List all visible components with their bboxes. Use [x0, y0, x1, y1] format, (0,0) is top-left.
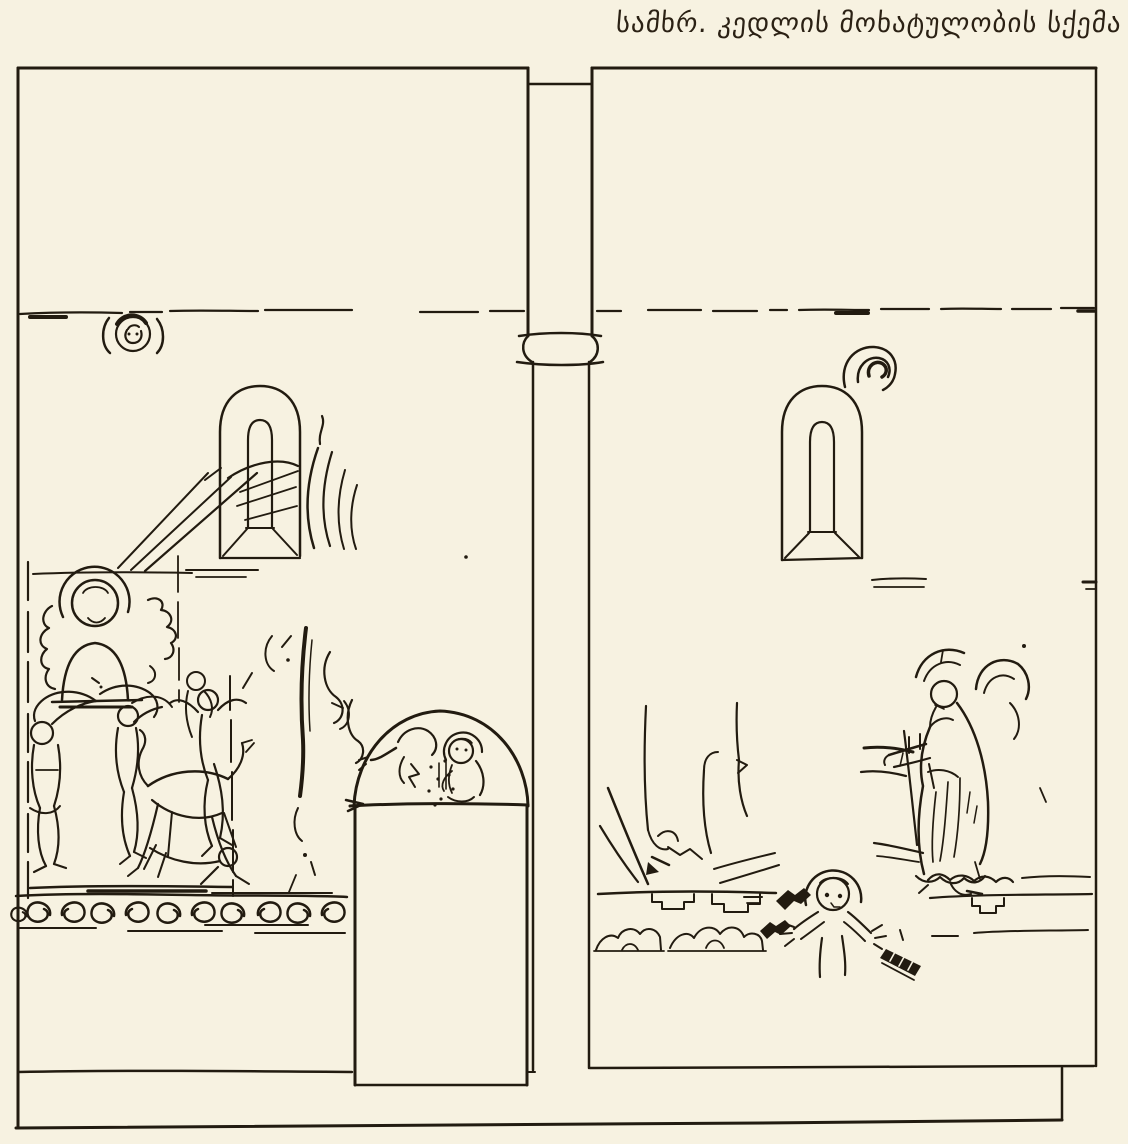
wall-scheme-drawing: [0, 0, 1128, 1144]
left-arched-window: [186, 386, 300, 577]
left-upper-fresco-scene: [28, 416, 357, 898]
doorway-with-lunette-fresco: [346, 711, 528, 1085]
lunette-fresco: [359, 728, 483, 806]
wall-borders: [18, 68, 1096, 1128]
standing-figure-fresco: [884, 644, 1029, 895]
right-arched-window: [782, 386, 1096, 589]
plinth-band: [16, 1066, 1094, 1128]
orant-figure-fresco: [744, 870, 921, 980]
cornice-dashed-line: [20, 308, 1095, 317]
right-fresco-fragments: [594, 703, 779, 951]
medallion-ornament: [103, 315, 163, 353]
scroll-ornament-band: [11, 891, 347, 933]
scanned-page: სამხრ. კედლის მოხატულობის სქემა: [0, 0, 1128, 1144]
pilaster: [517, 333, 603, 1070]
register-lines: [928, 788, 1092, 936]
curl-ornament: [844, 347, 896, 390]
